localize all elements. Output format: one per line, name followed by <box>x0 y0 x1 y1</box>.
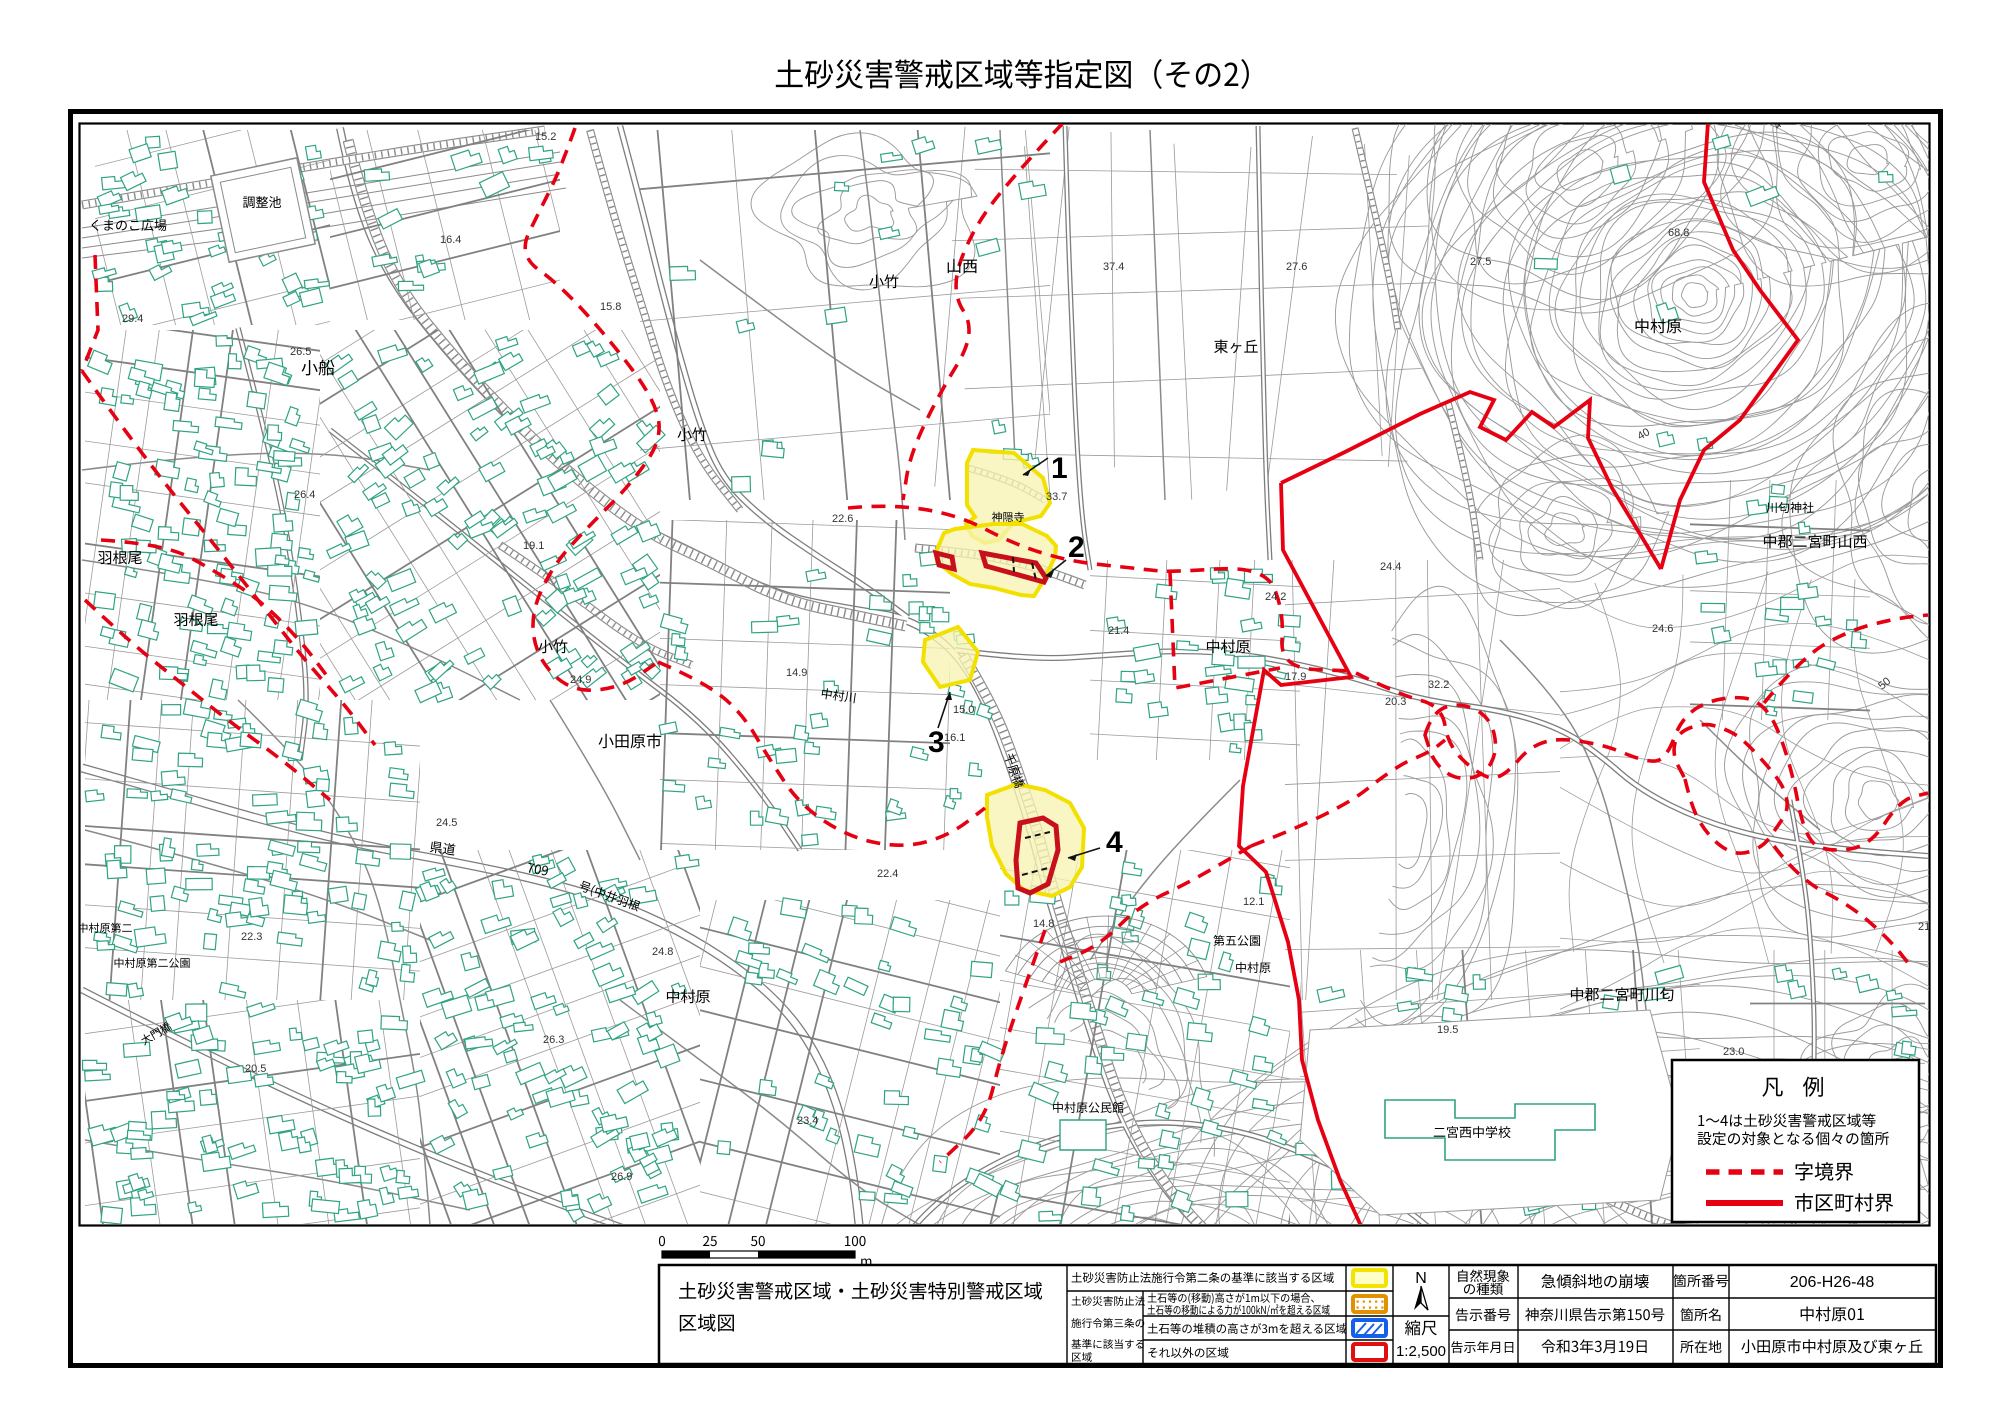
svg-text:21.4: 21.4 <box>1108 625 1129 637</box>
svg-text:24.9: 24.9 <box>570 674 591 686</box>
svg-text:16.1: 16.1 <box>944 732 965 744</box>
svg-text:23.0: 23.0 <box>1723 1046 1744 1058</box>
svg-text:15.0: 15.0 <box>953 704 974 716</box>
svg-text:19.1: 19.1 <box>523 540 544 552</box>
svg-text:22.4: 22.4 <box>877 868 898 880</box>
svg-text:26.9: 26.9 <box>611 1171 632 1183</box>
svg-text:24.2: 24.2 <box>1265 591 1286 603</box>
svg-text:26.3: 26.3 <box>543 1034 564 1046</box>
svg-text:N: N <box>1415 1270 1427 1287</box>
svg-text:15.8: 15.8 <box>600 301 621 313</box>
svg-text:24.4: 24.4 <box>1380 561 1401 573</box>
svg-text:20.3: 20.3 <box>1385 696 1406 708</box>
svg-text:33.7: 33.7 <box>1046 491 1067 503</box>
svg-text:14.9: 14.9 <box>786 667 807 679</box>
svg-text:206-H26-48: 206-H26-48 <box>1790 1274 1875 1291</box>
svg-text:17.9: 17.9 <box>1285 671 1306 683</box>
svg-text:2: 2 <box>1068 531 1085 564</box>
svg-text:1:2,500: 1:2,500 <box>1396 1343 1446 1360</box>
svg-text:20.5: 20.5 <box>245 1063 266 1075</box>
svg-text:15.2: 15.2 <box>535 131 556 143</box>
svg-text:22.3: 22.3 <box>241 931 262 943</box>
svg-text:1: 1 <box>1051 452 1068 485</box>
svg-text:19.5: 19.5 <box>1437 1024 1458 1036</box>
svg-text:4: 4 <box>1106 826 1123 859</box>
svg-text:27.6: 27.6 <box>1286 261 1307 273</box>
svg-text:22.6: 22.6 <box>832 513 853 525</box>
svg-text:24.5: 24.5 <box>436 817 457 829</box>
svg-text:29.4: 29.4 <box>122 313 143 325</box>
svg-text:27.5: 27.5 <box>1470 256 1491 268</box>
svg-text:26.5: 26.5 <box>290 346 311 358</box>
svg-text:23.4: 23.4 <box>797 1115 818 1127</box>
svg-text:24.6: 24.6 <box>1652 623 1673 635</box>
svg-text:37.4: 37.4 <box>1103 261 1124 273</box>
svg-text:68.8: 68.8 <box>1668 227 1689 239</box>
svg-text:3: 3 <box>928 726 945 759</box>
svg-text:26.4: 26.4 <box>294 489 315 501</box>
svg-text:14.8: 14.8 <box>1033 918 1054 930</box>
svg-text:32.2: 32.2 <box>1428 679 1449 691</box>
svg-text:24.8: 24.8 <box>652 946 673 958</box>
svg-text:16.4: 16.4 <box>440 234 461 246</box>
svg-text:12.1: 12.1 <box>1243 896 1264 908</box>
